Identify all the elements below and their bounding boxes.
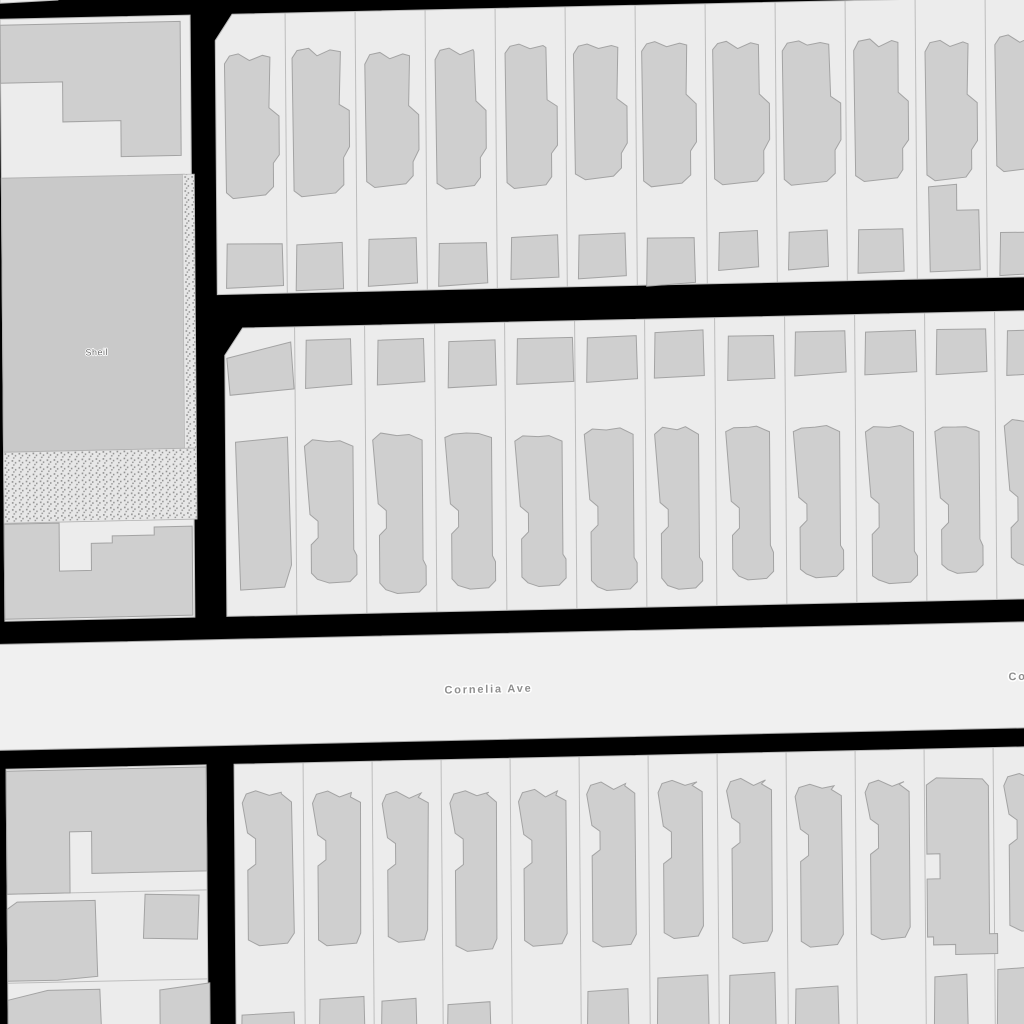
house-footprint: [726, 778, 772, 944]
house-footprint: [235, 437, 291, 590]
map-viewport[interactable]: SheilCornelia AveCornelia Ave: [0, 0, 1024, 1024]
map-canvas[interactable]: SheilCornelia AveCornelia Ave: [0, 0, 1024, 1024]
gravel-area: [4, 448, 198, 523]
garage-footprint: [319, 996, 365, 1024]
gravel-strip: [182, 174, 196, 448]
house-footprint: [995, 34, 1024, 172]
garage-footprint: [718, 230, 758, 270]
row-b: [225, 310, 1024, 616]
road-label: Cornelia Ave: [444, 683, 532, 697]
garage-footprint: [305, 339, 352, 389]
house-footprint: [518, 789, 567, 947]
garage-footprint: [586, 336, 637, 383]
park-label: Sheil: [85, 347, 108, 357]
house-footprint: [304, 439, 357, 584]
garage-footprint: [858, 229, 904, 274]
parcel-sliver-top-edge: [0, 0, 58, 3]
house-footprint: [450, 790, 498, 952]
garage-footprint: [1000, 231, 1024, 275]
garage-footprint: [657, 975, 710, 1024]
garage-footprint: [865, 330, 917, 375]
house-footprint: [726, 426, 774, 581]
garage-footprint: [646, 237, 695, 286]
building-footprint: [143, 893, 199, 940]
garage-footprint: [788, 230, 828, 270]
garage-footprint: [377, 339, 425, 385]
garage-footprint: [1006, 329, 1024, 375]
row-a: [215, 0, 1024, 296]
sheil-park: [1, 174, 186, 452]
garage-footprint: [438, 242, 487, 286]
garage-footprint: [934, 974, 968, 1024]
building-footprint: [7, 900, 98, 981]
house-footprint: [242, 790, 294, 946]
road-label-clipped: Cornelia Ave: [1008, 669, 1024, 683]
garage-footprint: [936, 328, 987, 374]
garage-footprint: [727, 335, 775, 380]
garage-footprint: [795, 986, 839, 1024]
house-footprint: [587, 781, 637, 947]
garage-footprint: [447, 1002, 491, 1024]
garage-footprint: [511, 235, 559, 280]
garage-footprint: [381, 998, 417, 1024]
row-c: [234, 746, 1024, 1024]
garage-footprint: [226, 243, 283, 289]
garage-footprint: [794, 331, 846, 376]
garage-footprint: [587, 989, 629, 1024]
house-footprint: [312, 790, 361, 946]
garage-footprint: [368, 238, 418, 287]
garage-footprint: [654, 330, 704, 378]
house-footprint: [865, 780, 910, 940]
building-footprint: [160, 983, 211, 1024]
map-tilt-group: SheilCornelia AveCornelia Ave: [0, 0, 1024, 1024]
garage-footprint: [516, 337, 573, 384]
garage-footprint: [448, 340, 497, 388]
garage-footprint: [578, 233, 626, 279]
garage-footprint: [296, 242, 344, 290]
house-footprint: [795, 784, 843, 948]
garage-footprint: [997, 967, 1024, 1024]
garage-footprint: [729, 972, 777, 1024]
